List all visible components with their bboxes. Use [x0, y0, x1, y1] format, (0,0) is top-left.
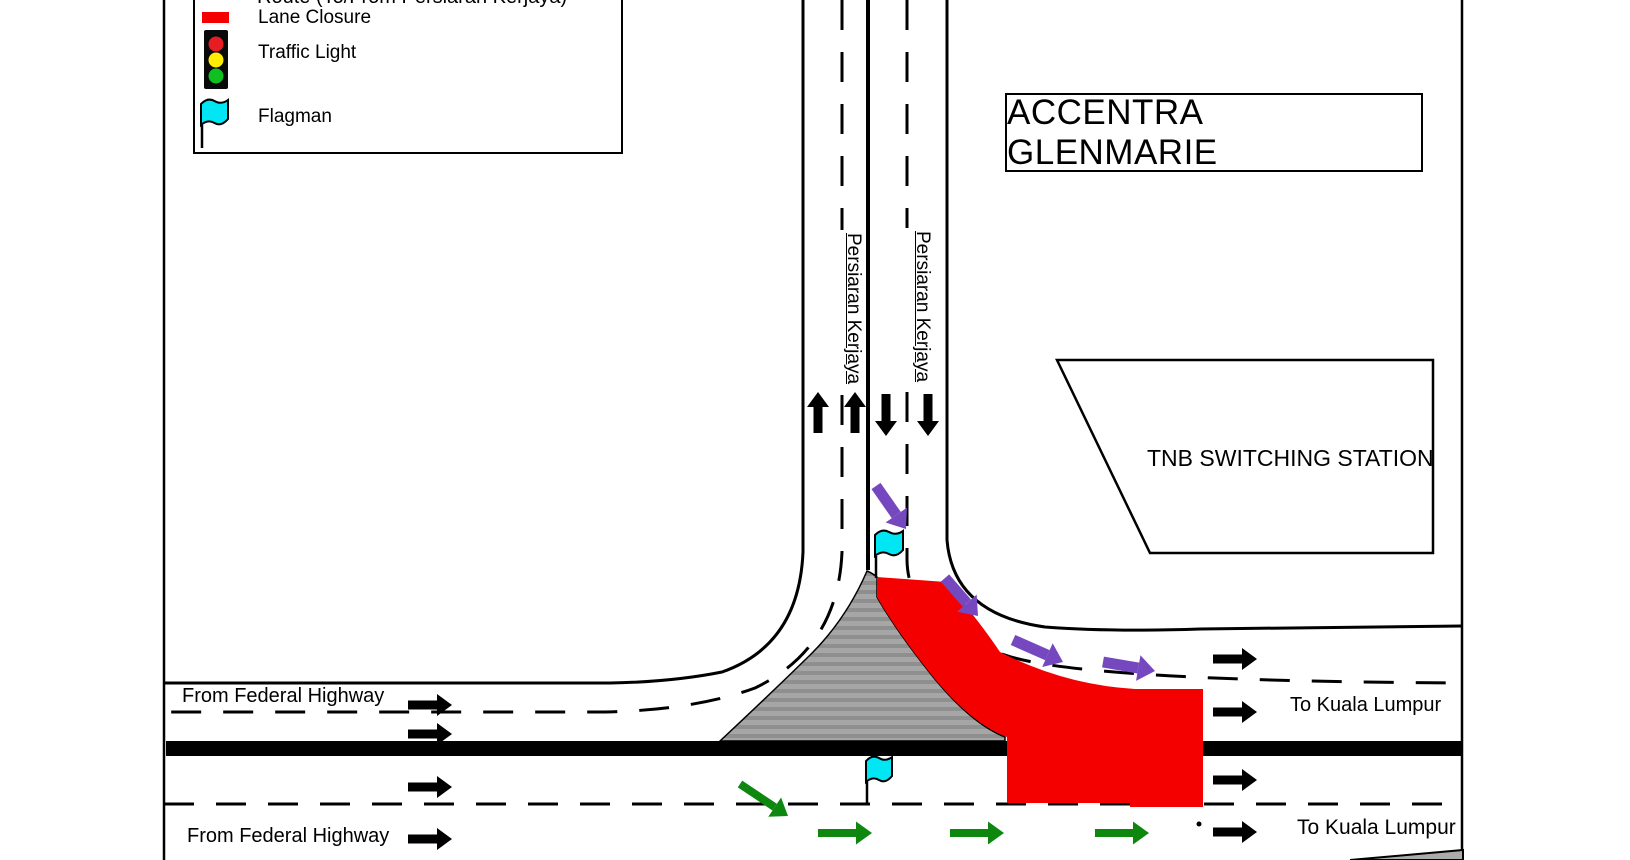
tnb-switching-station-label: TNB SWITCHING STATION [1147, 445, 1434, 472]
legend-item-traffic-light: Traffic Light [258, 42, 356, 64]
to-kuala-lumpur-label-lower: To Kuala Lumpur [1297, 816, 1456, 840]
traffic-management-plan: { "buildings": { "accentra": "ACCENTRA G… [0, 0, 1630, 860]
persiaran-kerjaya-label: Persiaran Kerjaya [842, 233, 864, 384]
legend-item-lane-closure: Lane Closure [258, 7, 371, 29]
from-federal-highway-label-upper: From Federal Highway [182, 685, 384, 708]
persiaran-kerjaya-label: Persiaran Kerjaya [911, 231, 933, 382]
legend-item-flagman: Flagman [258, 106, 332, 128]
from-federal-highway-label-lower: From Federal Highway [187, 825, 389, 848]
to-kuala-lumpur-label-upper: To Kuala Lumpur [1290, 694, 1441, 717]
